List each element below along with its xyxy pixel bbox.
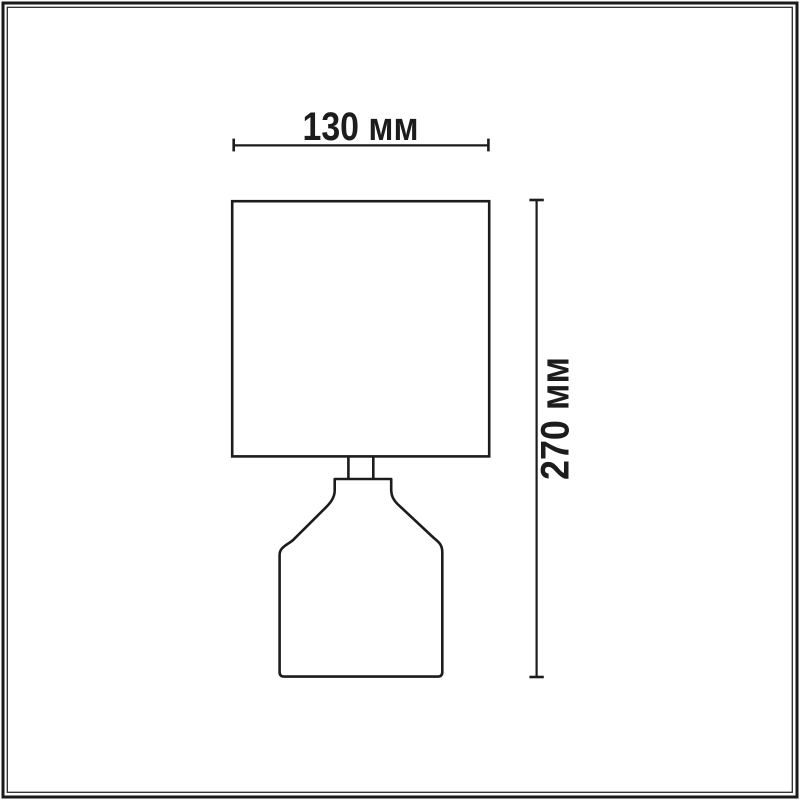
svg-text:270 мм: 270 мм: [534, 357, 578, 480]
svg-text:130 мм: 130 мм: [303, 105, 419, 149]
